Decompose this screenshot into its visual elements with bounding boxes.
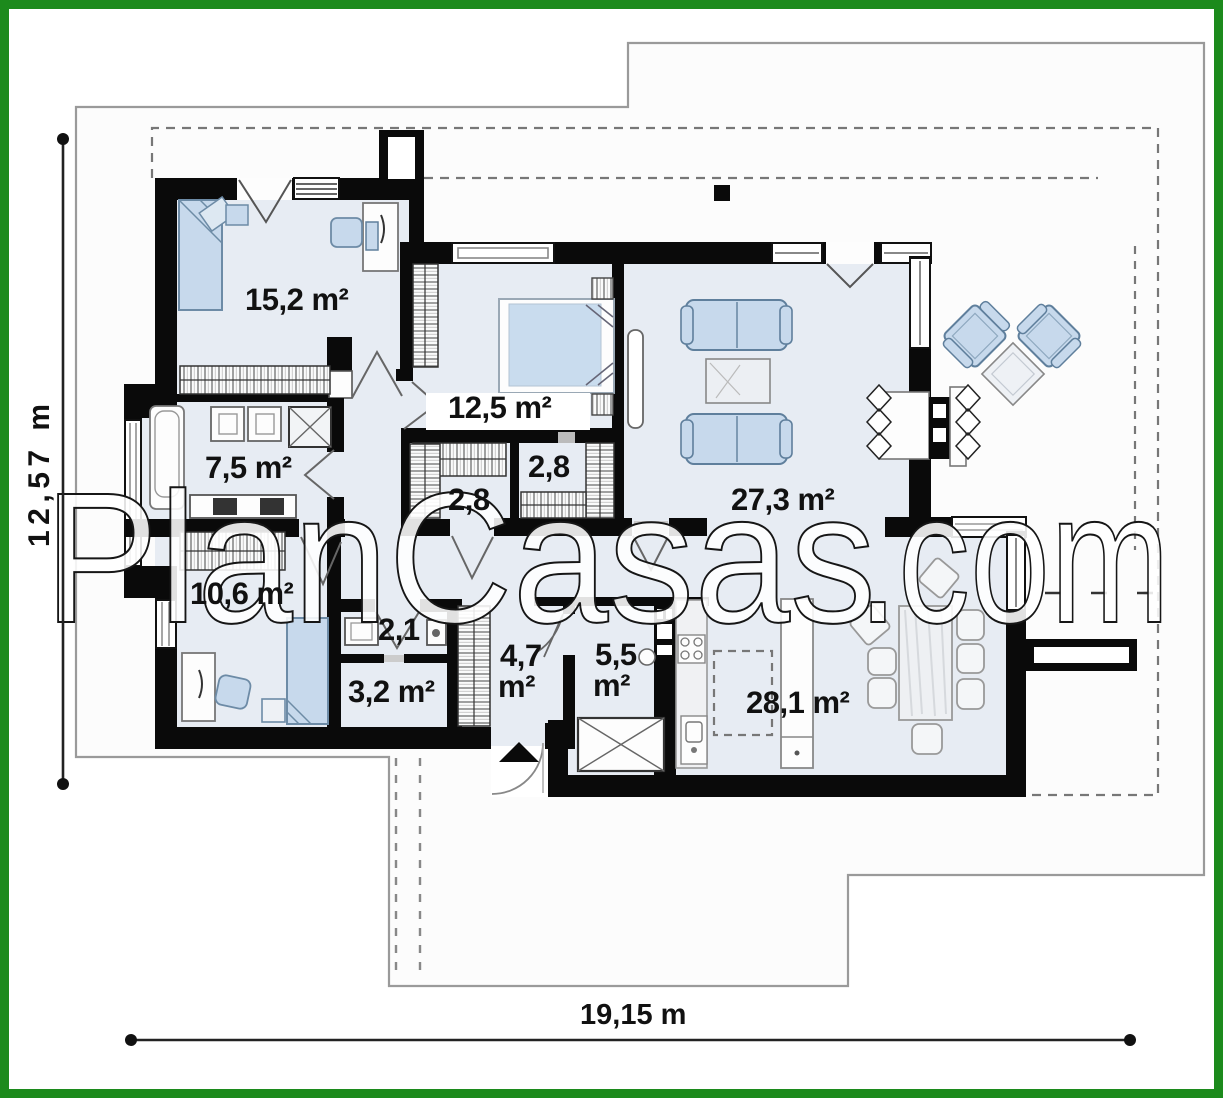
svg-text:7,5 m²: 7,5 m²	[205, 450, 292, 485]
svg-text:5,5: 5,5	[595, 637, 637, 672]
svg-text:m²: m²	[498, 669, 535, 704]
svg-text:27,3 m²: 27,3 m²	[731, 482, 835, 517]
svg-text:28,1 m²: 28,1 m²	[746, 685, 850, 720]
svg-text:12,5 m²: 12,5 m²	[448, 390, 552, 425]
svg-text:15,2 m²: 15,2 m²	[245, 282, 349, 317]
svg-text:12,57 m: 12,57 m	[23, 398, 56, 547]
svg-text:m²: m²	[593, 668, 630, 703]
svg-text:.com: .com	[858, 455, 1170, 662]
svg-text:3,2 m²: 3,2 m²	[348, 674, 435, 709]
svg-text:19,15 m: 19,15 m	[580, 999, 686, 1031]
svg-text:2,1: 2,1	[378, 612, 420, 647]
svg-text:10,6 m²: 10,6 m²	[190, 576, 294, 611]
svg-text:2,8: 2,8	[448, 482, 490, 517]
svg-text:2,8: 2,8	[528, 449, 570, 484]
svg-text:4,7: 4,7	[500, 638, 542, 673]
